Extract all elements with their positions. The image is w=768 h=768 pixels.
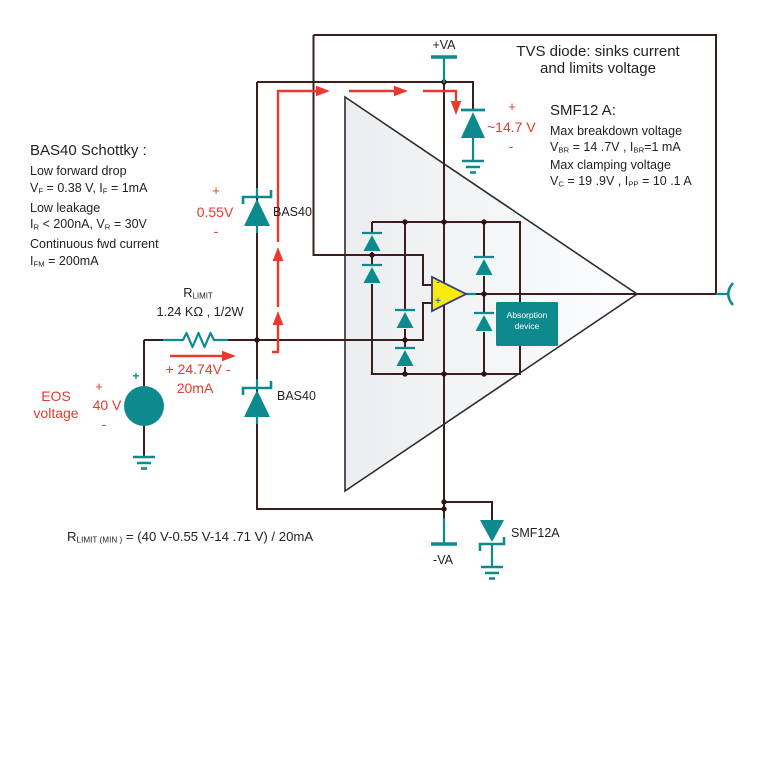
absorption-device-line2: device [496,321,558,332]
wire-top-rail-feed [257,82,473,110]
smf12-note-line: Max breakdown voltage [550,124,692,140]
tvs-note-line2: and limits voltage [502,60,694,77]
absorption-device-line1: Absorption [496,310,558,321]
source-plus-sign: + [132,370,139,384]
smf12a-label: SMF12A [511,526,560,540]
surge-current-label: 20mA [177,380,214,396]
opamp-minus-sign: - [436,277,439,289]
rlimit-formula: RLIMIT (MIN ) = (40 V-0.55 V-14 .71 V) /… [67,529,313,545]
bas40-top-label: BAS40 [273,205,312,219]
eos-plus: + [95,380,103,395]
resistor-name-label: RLIMIT [183,286,213,301]
bas40-note-line: Low forward drop [30,163,159,180]
tvs-note-line1: TVS diode: sinks current [502,43,694,60]
circuit-diagram: +VA -VA TVS diode: sinks current and lim… [0,0,768,768]
resistor-rlimit-icon [163,333,228,347]
plus-va-label: +VA [432,38,455,52]
current-arrow [272,322,278,352]
bas40-note: BAS40 Schottky : Low forward drop VF = 0… [30,142,159,273]
clamp147-plus: + [508,100,516,115]
eos-label-line1: EOS [41,388,71,404]
smf12-note-line: VBR = 14 .7V , IBR=1 mA [550,140,692,158]
smf12a-diode-icon [480,520,504,579]
bas40-bottom-diode-icon [243,379,271,424]
smf12-note-line: VC = 19 .9V , IPP = 10 .1 A [550,174,692,192]
bas40-note-title: BAS40 Schottky : [30,142,159,159]
bas40-note-line: IFM = 200mA [30,253,159,273]
clamp055-minus: - [214,223,219,239]
smf12-note-line: Max clamping voltage [550,158,692,174]
absorption-device-label: Absorption device [496,310,558,332]
clamp147-minus: - [509,138,514,154]
clamp055-plus: + [212,184,220,199]
smf12-note-title: SMF12 A: [550,102,692,119]
minus-va-label: -VA [433,553,453,567]
bas40-note-line: IR < 200nA, VR = 30V [30,216,159,236]
bas40-note-line: VF = 0.38 V, IF = 1mA [30,180,159,200]
clamp147-value: ~14.7 V [487,119,536,135]
eos-label-line2: voltage [33,405,78,421]
eos-minus: - [102,416,107,432]
plus-va-rail-icon [431,57,457,83]
minus-va-rail-icon [431,518,457,544]
surge-voltage-label: + 24.74V - [166,361,231,377]
bas40-bottom-label: BAS40 [277,389,316,403]
bas40-top-diode-icon [243,188,271,233]
bas40-note-line: Continuous fwd current [30,236,159,253]
clamp055-value: 0.55V [197,204,234,220]
bas40-note-line: Low leakage [30,200,159,217]
eos-voltage-source-icon [124,386,164,426]
tvs-diode-top-icon [461,110,485,173]
eos-value: 40 V [93,397,122,413]
opamp-plus-sign: + [435,296,441,308]
smf12-note: SMF12 A: Max breakdown voltage VBR = 14 … [550,102,692,193]
current-arrow [423,91,456,104]
wire-to-smf12a [444,502,492,520]
tvs-note: TVS diode: sinks current and limits volt… [502,43,694,77]
resistor-value-label: 1.24 KΩ , 1/2W [156,305,243,320]
ground-icon-source [133,457,155,469]
